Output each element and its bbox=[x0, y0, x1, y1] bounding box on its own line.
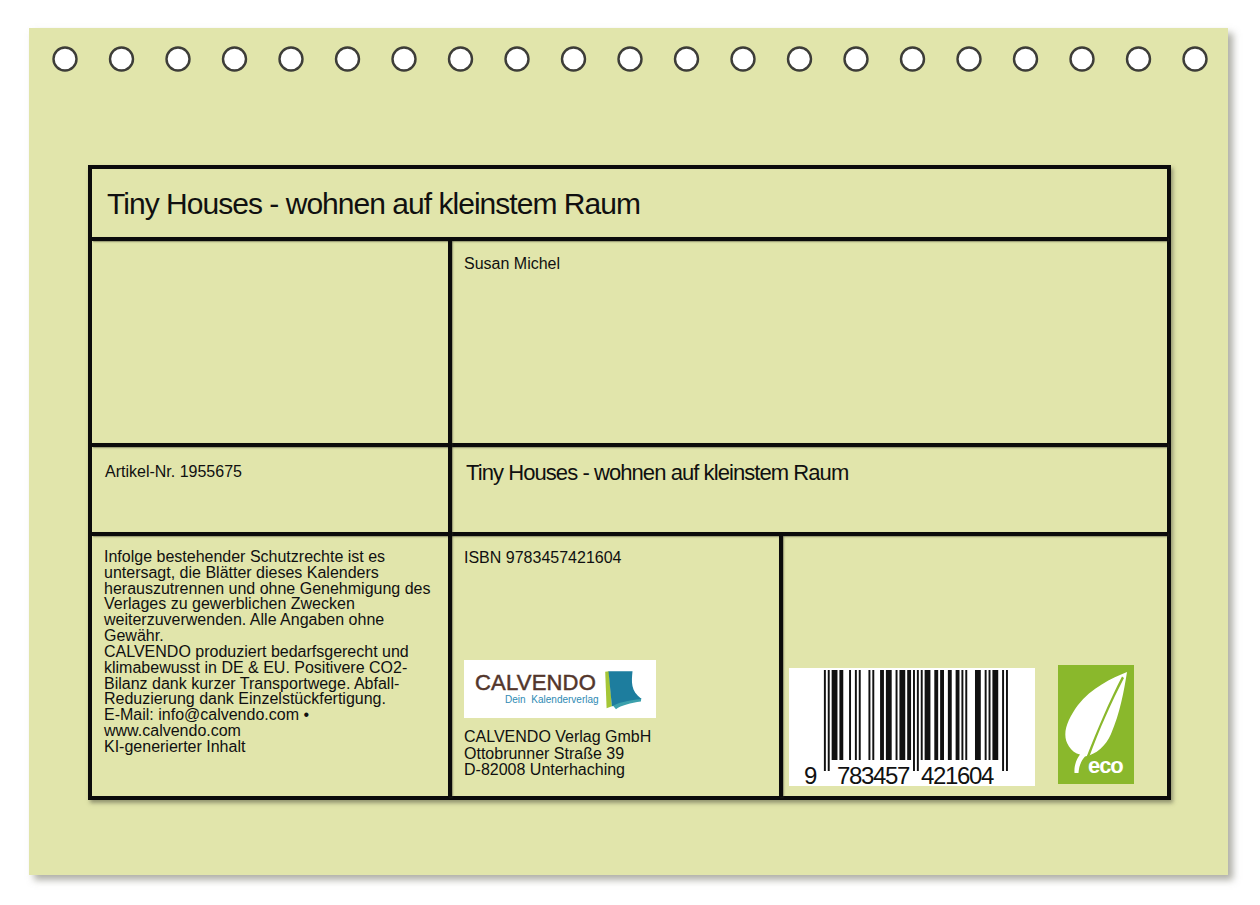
svg-text:eco: eco bbox=[1088, 753, 1123, 778]
